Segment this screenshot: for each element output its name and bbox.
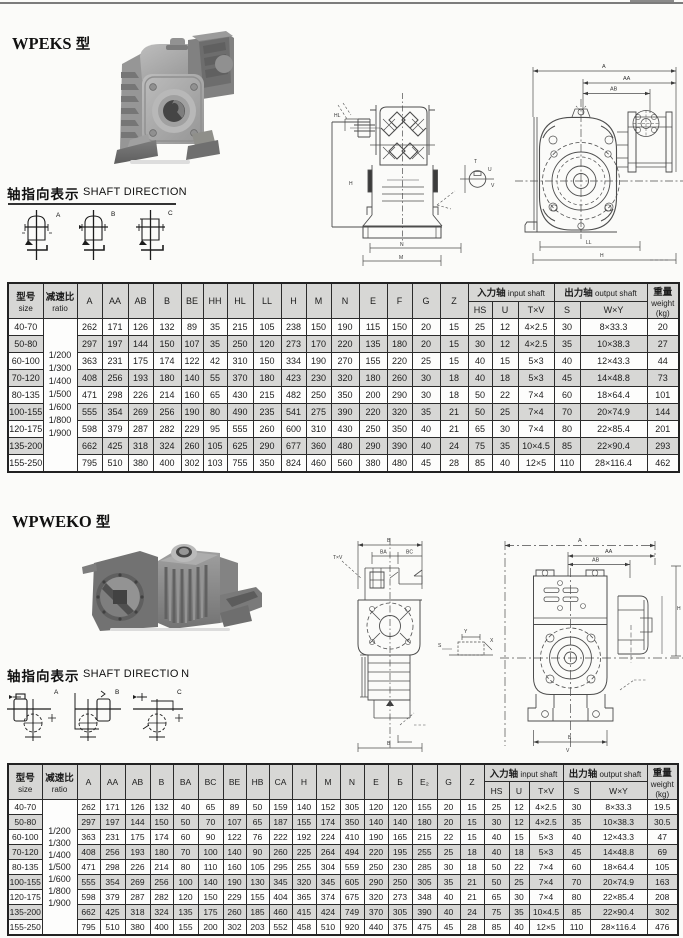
svg-text:M: M xyxy=(399,255,403,261)
svg-text:A: A xyxy=(578,538,582,544)
svg-text:AA: AA xyxy=(623,76,631,82)
svg-text:V: V xyxy=(566,748,570,754)
svg-text:AA: AA xyxy=(605,549,613,555)
svg-text:N: N xyxy=(400,242,404,248)
svg-text:A: A xyxy=(56,212,61,219)
svg-text:S: S xyxy=(438,643,442,649)
svg-text:B: B xyxy=(115,689,119,696)
svg-text:BA: BA xyxy=(380,550,387,556)
svg-text:A: A xyxy=(54,689,59,696)
svg-text:B: B xyxy=(568,735,572,741)
svg-text:HL: HL xyxy=(334,113,341,119)
svg-text:T: T xyxy=(474,159,477,165)
svg-text:H: H xyxy=(349,181,353,187)
svg-text:Y: Y xyxy=(464,629,468,635)
svg-text:AB: AB xyxy=(610,87,618,93)
svg-text:BC: BC xyxy=(406,550,413,556)
svg-text:B: B xyxy=(387,741,391,747)
svg-text:H: H xyxy=(600,253,604,259)
svg-text:LL: LL xyxy=(586,240,592,246)
svg-text:AB: AB xyxy=(592,558,600,564)
svg-text:B: B xyxy=(387,538,391,544)
svg-text:C: C xyxy=(168,210,173,217)
svg-text:X: X xyxy=(490,638,494,644)
svg-text:A: A xyxy=(602,64,606,70)
svg-text:T×V: T×V xyxy=(333,555,343,561)
svg-text:C: C xyxy=(177,689,182,696)
svg-text:B: B xyxy=(111,211,115,218)
svg-text:H: H xyxy=(677,606,681,612)
